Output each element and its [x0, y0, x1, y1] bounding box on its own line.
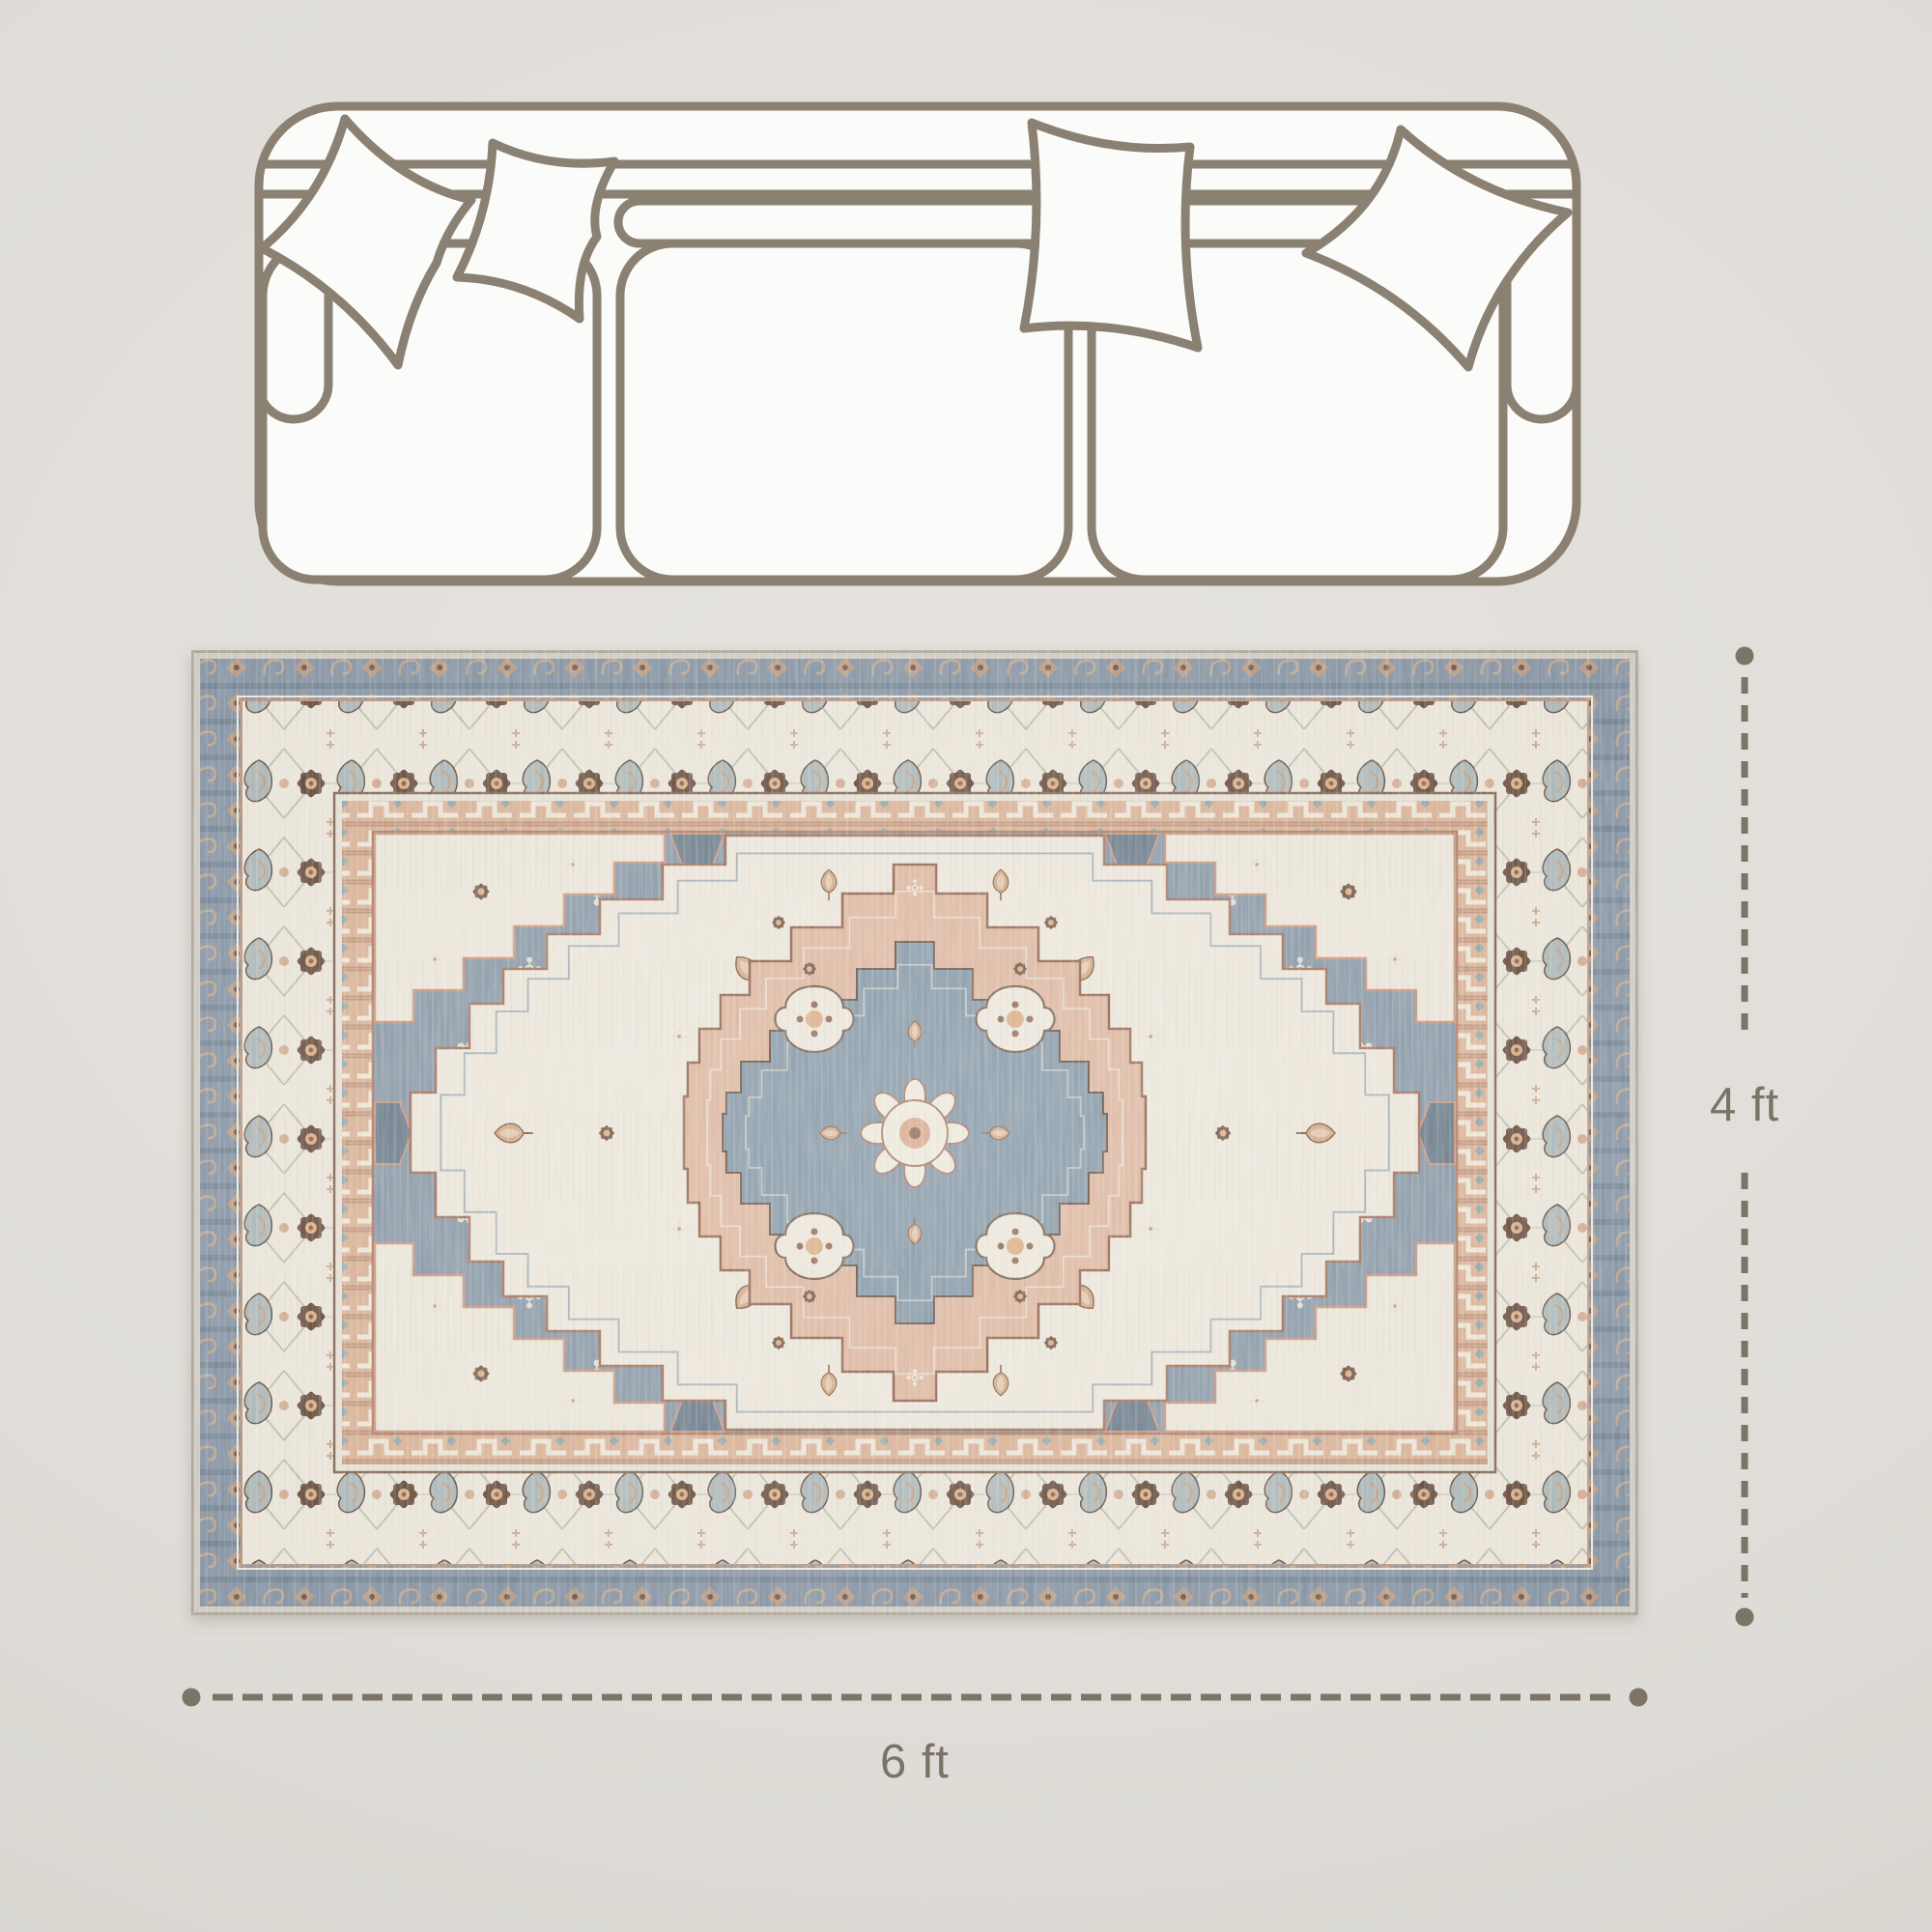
height-dimension: 4 ft	[1710, 647, 1779, 1627]
dimension-endpoint-dot	[183, 1689, 201, 1707]
diagram-svg: 4 ft 6 ft	[0, 0, 1932, 1932]
dimension-endpoint-dot	[1630, 1689, 1648, 1707]
sofa-pillow-icon	[1024, 123, 1198, 348]
rug-dimension-diagram: 4 ft 6 ft	[0, 0, 1932, 1932]
sofa-back-bolster	[618, 201, 1403, 243]
width-dimension: 6 ft	[183, 1689, 1648, 1789]
height-label: 4 ft	[1710, 1079, 1779, 1131]
dimension-endpoint-dot	[1736, 1608, 1754, 1627]
sofa-top-view-icon	[259, 106, 1577, 582]
sofa-seat-cushion	[620, 243, 1068, 580]
rug-illustration	[191, 650, 1638, 1615]
width-label: 6 ft	[880, 1736, 950, 1788]
dimension-endpoint-dot	[1736, 647, 1754, 666]
